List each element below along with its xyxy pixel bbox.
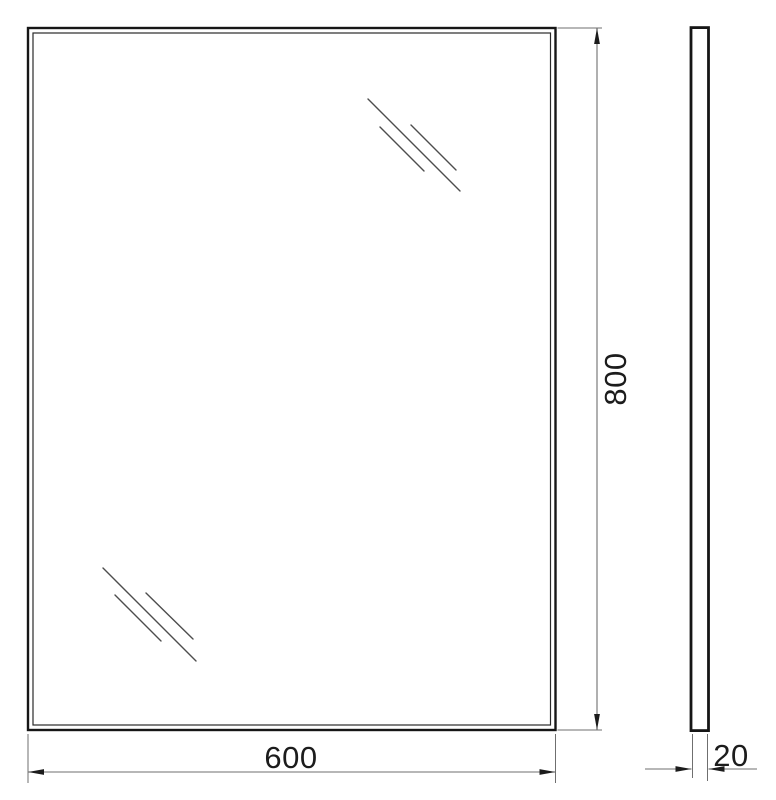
height-dimension: 800 xyxy=(558,28,634,730)
glare-marks-bottom-left xyxy=(103,568,196,661)
front-view-outer-frame xyxy=(28,28,556,730)
depth-dimension-label: 20 xyxy=(713,738,748,773)
drawing-page: 600 800 20 xyxy=(0,0,776,800)
arrow-left-icon xyxy=(28,769,44,775)
side-view xyxy=(691,28,709,731)
depth-dimension: 20 xyxy=(645,734,757,781)
arrow-right-icon xyxy=(540,769,556,775)
mirror-technical-drawing: 600 800 20 xyxy=(0,0,776,800)
front-view-inner-frame xyxy=(33,33,551,725)
arrow-up-icon xyxy=(594,28,600,44)
glare-line xyxy=(368,99,460,191)
width-dimension-label: 600 xyxy=(264,740,317,775)
arrow-right-icon xyxy=(676,766,692,772)
front-view xyxy=(28,28,556,730)
glare-line xyxy=(411,125,456,170)
glare-line xyxy=(103,568,196,661)
glare-marks-top-right xyxy=(368,99,460,191)
side-view-outline xyxy=(691,28,709,731)
width-dimension: 600 xyxy=(28,734,556,783)
arrow-down-icon xyxy=(594,714,600,730)
height-dimension-label: 800 xyxy=(598,352,633,405)
